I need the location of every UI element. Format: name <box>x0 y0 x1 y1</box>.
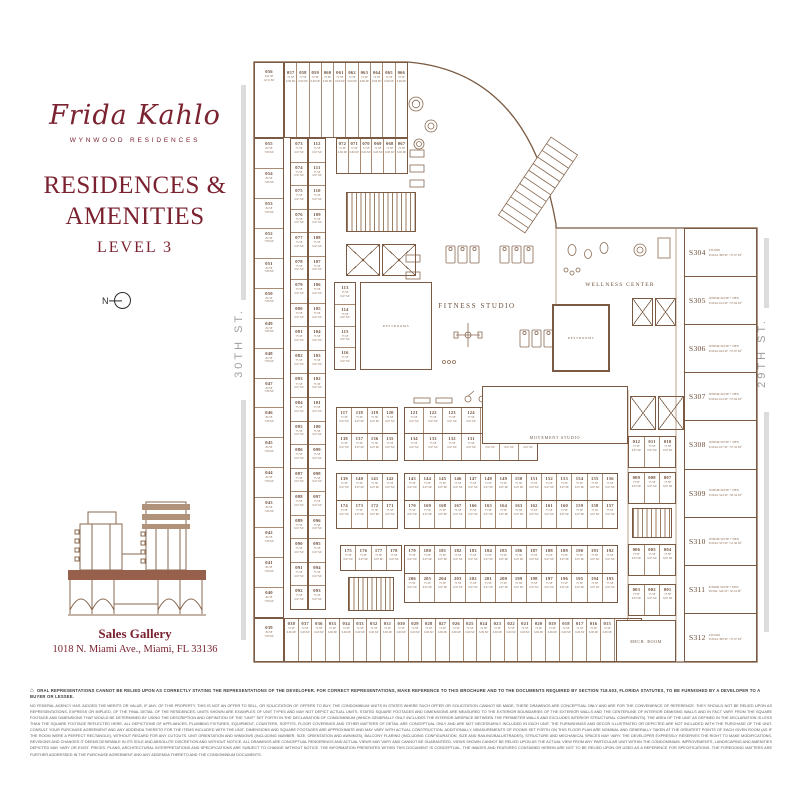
unit-cell: 15975 SF 6.97 M² <box>571 501 586 528</box>
unit-cell: 13675 SF 6.97 M² <box>367 434 382 460</box>
suite-id: S310 <box>689 537 706 546</box>
unit-cell: 11975 SF 6.97 M² <box>367 408 382 433</box>
brand-logo: Frida Kahlo <box>40 100 230 131</box>
unit-cell: 03672 SF 6.69 M² <box>311 619 325 661</box>
unit-cell: 08975 SF 6.97 M² <box>291 515 307 539</box>
suite-info: STUDIO TOTAL 399 SF | 37.07 M² <box>709 248 742 257</box>
unit-cell: 19275 SF 6.97 M² <box>602 546 617 573</box>
suite-id: S311 <box>689 585 705 594</box>
unit-col-left: 05584 SF 7.80 M²05484 SF 7.80 M²05384 SF… <box>254 138 284 618</box>
unit-cell: 20175 SF 6.97 M² <box>480 574 495 602</box>
unit-cell: 12275 SF 6.97 M² <box>423 408 442 433</box>
unit-cell: 00175 SF 6.97 M² <box>659 585 675 615</box>
unit-cell: 03472 SF 6.69 M² <box>339 619 353 661</box>
unit-cell: 16475 SF 6.97 M² <box>495 501 510 528</box>
unit-cell: 18975 SF 6.97 M² <box>556 546 571 573</box>
unit-col-pair-right: 11275 SF 6.97 M²11175 SF 6.97 M²11075 SF… <box>308 138 326 610</box>
unit-cell: 08575 SF 6.97 M² <box>291 421 307 445</box>
unit-cell: 11775 SF 6.97 M² <box>337 408 351 433</box>
unit-cell: 16375 SF 6.97 M² <box>511 501 526 528</box>
unit-cell: 14775 SF 6.97 M² <box>465 474 480 500</box>
unit-cell: 19175 SF 6.97 M² <box>587 546 602 573</box>
disclaimer: ⌂ORAL REPRESENTATIONS CANNOT BE RELIED U… <box>30 688 772 758</box>
unit-cell: 16975 SF 6.97 M² <box>419 501 434 528</box>
unit-cell: 06772 SF 6.69 M² <box>395 139 407 173</box>
unit-cell: 06272 SF 6.69 M² <box>345 63 357 137</box>
unit-cell: 13275 SF 6.97 M² <box>442 434 461 460</box>
unit-cell: 16875 SF 6.97 M² <box>434 501 449 528</box>
unit-cell: 16675 SF 6.97 M² <box>465 501 480 528</box>
suite-cell: S304 STUDIO TOTAL 399 SF | 37.07 M² <box>685 229 756 276</box>
suite-cell: S311 JUNIOR SUITE + DEN TOTAL 544 SF | 5… <box>685 565 756 613</box>
unit-cell: 19975 SF 6.97 M² <box>511 574 526 602</box>
unit-cell: 04484 SF 7.80 M² <box>255 467 283 497</box>
suite-cell: S312 STUDIO TOTAL 399 SF | 37.07 M² <box>685 613 756 661</box>
unit-cell: 17275 SF 6.97 M² <box>367 501 382 528</box>
unit-triple-3: 00675 SF 6.97 M²00575 SF 6.97 M²00475 SF… <box>628 544 676 576</box>
suite-area: TOTAL 544 SF | 50.54 M² <box>709 493 742 498</box>
suite-cell: S307 JUNIOR SUITE + DEN TOTAL 614 SF | 5… <box>685 372 756 420</box>
unit-cell-039: 039 84 SF 7.80 M² <box>254 618 284 662</box>
unit-cell: 05184 SF 7.80 M² <box>255 258 283 288</box>
unit-cell: 17875 SF 6.97 M² <box>386 546 401 570</box>
title-line2: AMENITIES <box>40 201 230 232</box>
brochure-page: Frida Kahlo WYNWOOD RESIDENCES RESIDENCE… <box>0 0 800 800</box>
unit-cell: 04384 SF 7.80 M² <box>255 497 283 527</box>
unit-cell: 00875 SF 6.97 M² <box>644 473 660 503</box>
suite-id: S304 <box>689 248 706 257</box>
unit-cell: 11875 SF 6.97 M² <box>351 408 366 433</box>
unit-cell: 06572 SF 6.69 M² <box>382 63 394 137</box>
unit-cell: 11475 SF 6.97 M² <box>335 304 355 326</box>
unit-cell: 02672 SF 6.69 M² <box>449 619 463 661</box>
unit-cell: 08675 SF 6.97 M² <box>291 444 307 468</box>
wellness-center-label: WELLNESS CENTER <box>556 282 684 288</box>
road-line-29th-upper <box>764 238 769 308</box>
unit-cell: 02972 SF 6.69 M² <box>408 619 422 661</box>
unit-cell: 10075 SF 6.97 M² <box>309 421 325 445</box>
mech-room-label: MECH. ROOM <box>630 639 662 644</box>
mech-room: MECH. ROOM <box>616 620 676 662</box>
unit-cell: 02272 SF 6.69 M² <box>504 619 518 661</box>
unit-cell: 02472 SF 6.69 M² <box>476 619 490 661</box>
unit-cell: 18175 SF 6.97 M² <box>434 546 449 573</box>
unit-cell: 07072 SF 6.69 M² <box>360 139 372 173</box>
unit-cell: 15175 SF 6.97 M² <box>526 474 541 500</box>
unit-cell: 17575 SF 6.97 M² <box>341 546 355 570</box>
unit-cell: 11675 SF 6.97 M² <box>335 347 355 369</box>
unit-cell: 14075 SF 6.97 M² <box>351 474 366 500</box>
unit-cell: 11075 SF 6.97 M² <box>309 185 325 209</box>
unit-cell: 13975 SF 6.97 M² <box>337 474 351 500</box>
unit-cell: 02872 SF 6.69 M² <box>421 619 435 661</box>
unit-area: 84 SF 7.80 M² <box>264 631 273 638</box>
road-line-30th-upper <box>241 85 246 300</box>
unit-block-f-top: 17975 SF 6.97 M²18075 SF 6.97 M²18175 SF… <box>404 545 618 574</box>
restrooms-label: RESTROOMS <box>383 324 410 328</box>
unit-cell: 04184 SF 7.80 M² <box>255 557 283 587</box>
unit-cell: 15375 SF 6.97 M² <box>556 474 571 500</box>
unit-cell: 06472 SF 6.69 M² <box>370 63 382 137</box>
unit-cell: 20675 SF 6.97 M² <box>405 574 419 602</box>
unit-cell: 16175 SF 6.97 M² <box>541 501 556 528</box>
restrooms-room-2: RESTROOMS <box>552 304 610 372</box>
unit-cell: 09375 SF 6.97 M² <box>309 585 325 609</box>
unit-cell: 17775 SF 6.97 M² <box>371 546 386 570</box>
unit-cell: 17175 SF 6.97 M² <box>382 501 397 528</box>
unit-cell: 11375 SF 6.97 M² <box>335 283 355 304</box>
unit-triple-2: 00975 SF 6.97 M²00875 SF 6.97 M²00775 SF… <box>628 472 676 504</box>
unit-cell: 08475 SF 6.97 M² <box>291 397 307 421</box>
unit-cell: 20275 SF 6.97 M² <box>465 574 480 602</box>
unit-cell: 04084 SF 7.80 M² <box>255 587 283 617</box>
unit-cell: 16275 SF 6.97 M² <box>526 501 541 528</box>
unit-triple-1: 01275 SF 6.97 M²01175 SF 6.97 M²01075 SF… <box>628 436 676 468</box>
unit-area: 242 SF 22.51 M² <box>264 75 275 82</box>
unit-cell: 10475 SF 6.97 M² <box>309 326 325 350</box>
unit-cell: 05484 SF 7.80 M² <box>255 168 283 198</box>
unit-cell: 19675 SF 6.97 M² <box>556 574 571 602</box>
unit-cell: 04984 SF 7.80 M² <box>255 318 283 348</box>
suite-cell: S305 JUNIOR SUITE + DEN TOTAL 614 SF | 5… <box>685 276 756 324</box>
unit-cell: 03772 SF 6.69 M² <box>298 619 312 661</box>
restrooms-label: RESTROOMS <box>568 336 595 340</box>
unit-cell: 08875 SF 6.97 M² <box>291 491 307 515</box>
unit-cell: 18675 SF 6.97 M² <box>511 546 526 573</box>
unit-row-bottom: 03872 SF 6.69 M²03772 SF 6.69 M²03672 SF… <box>284 618 642 662</box>
unit-cell: 07375 SF 6.97 M² <box>291 139 307 162</box>
unit-cell: 06072 SF 6.69 M² <box>321 63 333 137</box>
unit-cell: 03172 SF 6.69 M² <box>380 619 394 661</box>
unit-cell: 20075 SF 6.97 M² <box>495 574 510 602</box>
unit-cell: 10875 SF 6.97 M² <box>309 232 325 256</box>
unit-cell: 13875 SF 6.97 M² <box>337 434 351 460</box>
unit-cell: 03072 SF 6.69 M² <box>394 619 408 661</box>
suite-cell: S306 JUNIOR SUITE + DEN TOTAL 624 SF | 5… <box>685 324 756 372</box>
unit-cell: 14475 SF 6.97 M² <box>419 474 434 500</box>
unit-cell: 13375 SF 6.97 M² <box>423 434 442 460</box>
unit-cell: 09075 SF 6.97 M² <box>291 538 307 562</box>
unit-block-a-bottom: 13875 SF 6.97 M²13775 SF 6.97 M²13675 SF… <box>336 434 398 461</box>
unit-cell: 01772 SF 6.69 M² <box>572 619 586 661</box>
unit-cell: 18375 SF 6.97 M² <box>465 546 480 573</box>
unit-cell: 12475 SF 6.97 M² <box>461 408 480 433</box>
unit-col-113: 11375 SF 6.97 M²11475 SF 6.97 M²11575 SF… <box>334 282 356 370</box>
unit-cell: 05972 SF 6.69 M² <box>309 63 321 137</box>
unit-cell: 13775 SF 6.97 M² <box>351 434 366 460</box>
unit-cell: 05872 SF 6.69 M² <box>296 63 308 137</box>
unit-cell: 10675 SF 6.97 M² <box>309 279 325 303</box>
suite-info: STUDIO TOTAL 399 SF | 37.07 M² <box>709 633 742 642</box>
suite-id: S307 <box>689 392 706 401</box>
unit-cell: 02372 SF 6.69 M² <box>490 619 504 661</box>
unit-cell: 08075 SF 6.97 M² <box>291 303 307 327</box>
unit-cell: 00375 SF 6.97 M² <box>629 585 644 615</box>
unit-cell: 19575 SF 6.97 M² <box>571 574 586 602</box>
suite-area: TOTAL 617 SF | 57.32 M² <box>709 445 742 450</box>
title-line1: RESIDENCES & <box>40 170 230 201</box>
movement-studio-label: MOVEMENT STUDIO <box>530 435 581 440</box>
unit-cell: 06972 SF 6.69 M² <box>371 139 383 173</box>
unit-cell: 16075 SF 6.97 M² <box>556 501 571 528</box>
unit-col-pair-left: 07375 SF 6.97 M²07475 SF 6.97 M²07575 SF… <box>290 138 308 610</box>
unit-cell: 09975 SF 6.97 M² <box>309 444 325 468</box>
unit-triple-4: 00375 SF 6.97 M²00275 SF 6.97 M²00175 SF… <box>628 584 676 616</box>
unit-cell: 07475 SF 6.97 M² <box>291 162 307 186</box>
unit-cell: 08175 SF 6.97 M² <box>291 326 307 350</box>
building-illustration <box>62 492 212 622</box>
unit-cell: 11575 SF 6.97 M² <box>335 326 355 348</box>
unit-row-2: 07272 SF 6.69 M²07172 SF 6.69 M²07072 SF… <box>336 138 408 174</box>
disclaimer-body: NO FEDERAL AGENCY HAS JUDGED THE MERITS … <box>30 703 772 758</box>
unit-cell: 06672 SF 6.69 M² <box>395 63 407 137</box>
unit-cell: 17375 SF 6.97 M² <box>351 501 366 528</box>
unit-cell: 17975 SF 6.97 M² <box>405 546 419 573</box>
unit-cell: 01275 SF 6.97 M² <box>629 437 644 467</box>
unit-cell: 07675 SF 6.97 M² <box>291 209 307 233</box>
unit-cell: 01872 SF 6.69 M² <box>559 619 573 661</box>
unit-cell: 16575 SF 6.97 M² <box>480 501 495 528</box>
brand-tagline: WYNWOOD RESIDENCES <box>40 137 230 144</box>
unit-cell: 05772 SF 6.69 M² <box>285 63 296 137</box>
unit-cell: 08375 SF 6.97 M² <box>291 373 307 397</box>
unit-block-d-bottom: 17075 SF 6.97 M²16975 SF 6.97 M²16875 SF… <box>404 501 618 529</box>
unit-cell: 09175 SF 6.97 M² <box>291 562 307 586</box>
unit-cell: 15275 SF 6.97 M² <box>541 474 556 500</box>
unit-block-c-bottom: 17475 SF 6.97 M²17375 SF 6.97 M²17275 SF… <box>336 501 398 529</box>
suite-id: S306 <box>689 344 706 353</box>
unit-cell: 04784 SF 7.80 M² <box>255 378 283 408</box>
unit-cell: 04584 SF 7.80 M² <box>255 437 283 467</box>
unit-cell: 15875 SF 6.97 M² <box>587 501 602 528</box>
unit-cell: 15775 SF 6.97 M² <box>602 501 617 528</box>
unit-cell: 01972 SF 6.69 M² <box>545 619 559 661</box>
unit-cell: 14275 SF 6.97 M² <box>382 474 397 500</box>
unit-cell: 01572 SF 6.69 M² <box>600 619 614 661</box>
unit-cell: 19375 SF 6.97 M² <box>602 574 617 602</box>
unit-cell: 17075 SF 6.97 M² <box>405 501 419 528</box>
unit-cell: 11275 SF 6.97 M² <box>309 139 325 162</box>
unit-cell: 05584 SF 7.80 M² <box>255 139 283 168</box>
unit-cell: 15075 SF 6.97 M² <box>511 474 526 500</box>
unit-cell: 03372 SF 6.69 M² <box>353 619 367 661</box>
suite-area: TOTAL 544 SF | 50.54 M² <box>708 589 741 594</box>
unit-cell: 06372 SF 6.69 M² <box>358 63 370 137</box>
unit-cell: 13575 SF 6.97 M² <box>382 434 397 460</box>
unit-cell: 09275 SF 6.97 M² <box>291 585 307 609</box>
road-line-30th-lower <box>241 400 246 640</box>
unit-cell: 12375 SF 6.97 M² <box>442 408 461 433</box>
unit-cell: 15575 SF 6.97 M² <box>587 474 602 500</box>
movement-studio-room: MOVEMENT STUDIO <box>482 386 628 444</box>
sidebar: Frida Kahlo WYNWOOD RESIDENCES RESIDENCE… <box>40 100 230 257</box>
unit-cell: 15475 SF 6.97 M² <box>571 474 586 500</box>
unit-cell: 14975 SF 6.97 M² <box>495 474 510 500</box>
suite-id: S305 <box>689 296 706 305</box>
unit-cell: 00775 SF 6.97 M² <box>659 473 675 503</box>
unit-cell: 07272 SF 6.69 M² <box>337 139 348 173</box>
suite-info: JUNIOR SUITE + DEN TOTAL 624 SF | 57.97 … <box>709 344 742 353</box>
suites-column: S304 STUDIO TOTAL 399 SF | 37.07 M² S305… <box>684 228 757 662</box>
suite-cell: S308 JUNIOR SUITE + DEN TOTAL 617 SF | 5… <box>685 420 756 468</box>
suite-info: JUNIOR SUITE + DEN TOTAL 617 SF | 57.32 … <box>709 440 742 449</box>
unit-cell: 14675 SF 6.97 M² <box>450 474 465 500</box>
unit-cell: 18875 SF 6.97 M² <box>541 546 556 573</box>
unit-cell: 04284 SF 7.80 M² <box>255 527 283 557</box>
unit-cell: 19075 SF 6.97 M² <box>571 546 586 573</box>
unit-cell: 01672 SF 6.69 M² <box>586 619 600 661</box>
unit-cell: 20575 SF 6.97 M² <box>419 574 434 602</box>
street-label-29th: 29TH ST. <box>756 318 768 388</box>
elevator-icon <box>346 244 416 276</box>
unit-cell: 15675 SF 6.97 M² <box>602 474 617 500</box>
unit-cell: 10275 SF 6.97 M² <box>309 373 325 397</box>
unit-cell: 18475 SF 6.97 M² <box>480 546 495 573</box>
unit-cell: 18075 SF 6.97 M² <box>419 546 434 573</box>
unit-cell: 01175 SF 6.97 M² <box>644 437 660 467</box>
unit-cell: 19775 SF 6.97 M² <box>541 574 556 602</box>
unit-block-c-top: 13975 SF 6.97 M²14075 SF 6.97 M²14175 SF… <box>336 473 398 501</box>
unit-cell: 18275 SF 6.97 M² <box>450 546 465 573</box>
unit-cell: 19475 SF 6.97 M² <box>587 574 602 602</box>
unit-cell: 00275 SF 6.97 M² <box>644 585 660 615</box>
unit-cell: 07575 SF 6.97 M² <box>291 185 307 209</box>
unit-row-top: 05772 SF 6.69 M²05872 SF 6.69 M²05972 SF… <box>284 62 408 138</box>
suite-info: JUNIOR SUITE + DEN TOTAL 555 SF | 51.56 … <box>709 537 742 546</box>
north-compass: N <box>102 292 131 309</box>
unit-cell: 03872 SF 6.69 M² <box>285 619 298 661</box>
unit-cell: 14375 SF 6.97 M² <box>405 474 419 500</box>
compass-icon <box>114 292 131 309</box>
unit-cell: 17675 SF 6.97 M² <box>355 546 370 570</box>
disclaimer-headline: ⌂ORAL REPRESENTATIONS CANNOT BE RELIED U… <box>30 688 772 699</box>
unit-cell: 06172 SF 6.69 M² <box>333 63 345 137</box>
suite-id: S309 <box>689 489 706 498</box>
unit-cell: 03572 SF 6.69 M² <box>325 619 339 661</box>
unit-cell: 09475 SF 6.97 M² <box>309 562 325 586</box>
unit-cell: 13175 SF 6.97 M² <box>461 434 480 460</box>
sales-gallery-address: 1018 N. Miami Ave., Miami, FL 33136 <box>30 644 240 655</box>
sales-gallery-title: Sales Gallery <box>40 626 230 642</box>
unit-cell: 04884 SF 7.80 M² <box>255 348 283 378</box>
restrooms-room: RESTROOMS <box>360 282 432 370</box>
unit-cell: 02772 SF 6.69 M² <box>435 619 449 661</box>
unit-cell: 03272 SF 6.69 M² <box>366 619 380 661</box>
unit-cell: 05284 SF 7.80 M² <box>255 228 283 258</box>
suite-area: TOTAL 614 SF | 57.04 M² <box>709 301 742 306</box>
unit-cell: 05084 SF 7.80 M² <box>255 288 283 318</box>
unit-cell: 07975 SF 6.97 M² <box>291 279 307 303</box>
suite-cell: S310 JUNIOR SUITE + DEN TOTAL 555 SF | 5… <box>685 517 756 565</box>
unit-cell: 08275 SF 6.97 M² <box>291 350 307 374</box>
suite-info: JUNIOR SUITE + DEN TOTAL 614 SF | 57.04 … <box>709 296 742 305</box>
unit-cell: 02072 SF 6.69 M² <box>531 619 545 661</box>
unit-cell: 10175 SF 6.97 M² <box>309 397 325 421</box>
elevator-icon <box>632 298 676 326</box>
unit-cell: 17475 SF 6.97 M² <box>337 501 351 528</box>
unit-cell: 09675 SF 6.97 M² <box>309 515 325 539</box>
unit-cell: 00475 SF 6.97 M² <box>659 545 675 575</box>
suite-info: JUNIOR SUITE + DEN TOTAL 614 SF | 57.04 … <box>709 392 742 401</box>
wellness-fixture-icons <box>564 238 670 275</box>
unit-cell: 14875 SF 6.97 M² <box>480 474 495 500</box>
unit-cell: 00575 SF 6.97 M² <box>644 545 660 575</box>
unit-block-a-top: 11775 SF 6.97 M²11875 SF 6.97 M²11975 SF… <box>336 407 398 434</box>
unit-cell: 09575 SF 6.97 M² <box>309 538 325 562</box>
road-line-29th-lower <box>764 412 769 632</box>
unit-cell-056: 056 242 SF 22.51 M² <box>254 62 284 138</box>
level-label: LEVEL 3 <box>40 239 230 257</box>
unit-cell: 01075 SF 6.97 M² <box>659 437 675 467</box>
unit-cell: 09875 SF 6.97 M² <box>309 468 325 492</box>
unit-cell: 20475 SF 6.97 M² <box>434 574 449 602</box>
unit-cell: 09775 SF 6.97 M² <box>309 491 325 515</box>
unit-cell: 10975 SF 6.97 M² <box>309 209 325 233</box>
unit-cell: 18575 SF 6.97 M² <box>495 546 510 573</box>
unit-cell: 10375 SF 6.97 M² <box>309 350 325 374</box>
unit-cell: 05384 SF 7.80 M² <box>255 198 283 228</box>
unit-cell: 06872 SF 6.69 M² <box>383 139 395 173</box>
unit-cell: 10775 SF 6.97 M² <box>309 256 325 280</box>
suite-info: JUNIOR SUITE + DEN TOTAL 544 SF | 50.54 … <box>709 488 742 497</box>
unit-cell: 18775 SF 6.97 M² <box>526 546 541 573</box>
suite-id: S308 <box>689 440 706 449</box>
unit-cell: 02172 SF 6.69 M² <box>517 619 531 661</box>
unit-block-e: 17575 SF 6.97 M²17675 SF 6.97 M²17775 SF… <box>340 545 402 571</box>
unit-cell: 07775 SF 6.97 M² <box>291 232 307 256</box>
street-label-30th: 30TH ST. <box>233 308 245 378</box>
unit-cell: 00675 SF 6.97 M² <box>629 545 644 575</box>
unit-cell: 14575 SF 6.97 M² <box>434 474 449 500</box>
suite-area: TOTAL 399 SF | 37.07 M² <box>709 637 742 642</box>
suite-id: S312 <box>689 633 706 642</box>
unit-cell: 13475 SF 6.97 M² <box>405 434 423 460</box>
unit-cell: 02572 SF 6.69 M² <box>463 619 477 661</box>
unit-cell: 14175 SF 6.97 M² <box>367 474 382 500</box>
page-title: RESIDENCES & AMENITIES <box>40 170 230 233</box>
stairs-icon <box>632 508 672 538</box>
unit-cell: 20375 SF 6.97 M² <box>450 574 465 602</box>
suite-info: JUNIOR SUITE + DEN TOTAL 544 SF | 50.54 … <box>708 585 741 594</box>
unit-cell: 11175 SF 6.97 M² <box>309 162 325 186</box>
unit-cell: 08775 SF 6.97 M² <box>291 468 307 492</box>
stairs-icon <box>346 192 416 232</box>
suite-area: TOTAL 614 SF | 57.04 M² <box>709 397 742 402</box>
unit-block-d-top: 14375 SF 6.97 M²14475 SF 6.97 M²14575 SF… <box>404 473 618 501</box>
unit-cell: 19875 SF 6.97 M² <box>526 574 541 602</box>
unit-cell: 16775 SF 6.97 M² <box>450 501 465 528</box>
unit-block-f-bottom: 20675 SF 6.97 M²20575 SF 6.97 M²20475 SF… <box>404 574 618 603</box>
suite-area: TOTAL 399 SF | 37.07 M² <box>709 253 742 258</box>
fitness-studio-label: FITNESS STUDIO <box>412 302 542 310</box>
unit-cell: 07875 SF 6.97 M² <box>291 256 307 280</box>
unit-cell: 07172 SF 6.69 M² <box>348 139 360 173</box>
suite-area: TOTAL 624 SF | 57.97 M² <box>709 349 742 354</box>
suite-cell: S309 JUNIOR SUITE + DEN TOTAL 544 SF | 5… <box>685 469 756 517</box>
elevator-icon <box>630 396 684 430</box>
unit-cell: 12075 SF 6.97 M² <box>382 408 397 433</box>
suite-area: TOTAL 555 SF | 51.56 M² <box>709 541 742 546</box>
disclaimer-headline-text: ORAL REPRESENTATIONS CANNOT BE RELIED UP… <box>30 688 760 699</box>
unit-cell: 10575 SF 6.97 M² <box>309 303 325 327</box>
unit-cell: 04684 SF 7.80 M² <box>255 407 283 437</box>
stairs-icon <box>348 577 394 611</box>
unit-cell: 00975 SF 6.97 M² <box>629 473 644 503</box>
unit-cell: 12175 SF 6.97 M² <box>405 408 423 433</box>
